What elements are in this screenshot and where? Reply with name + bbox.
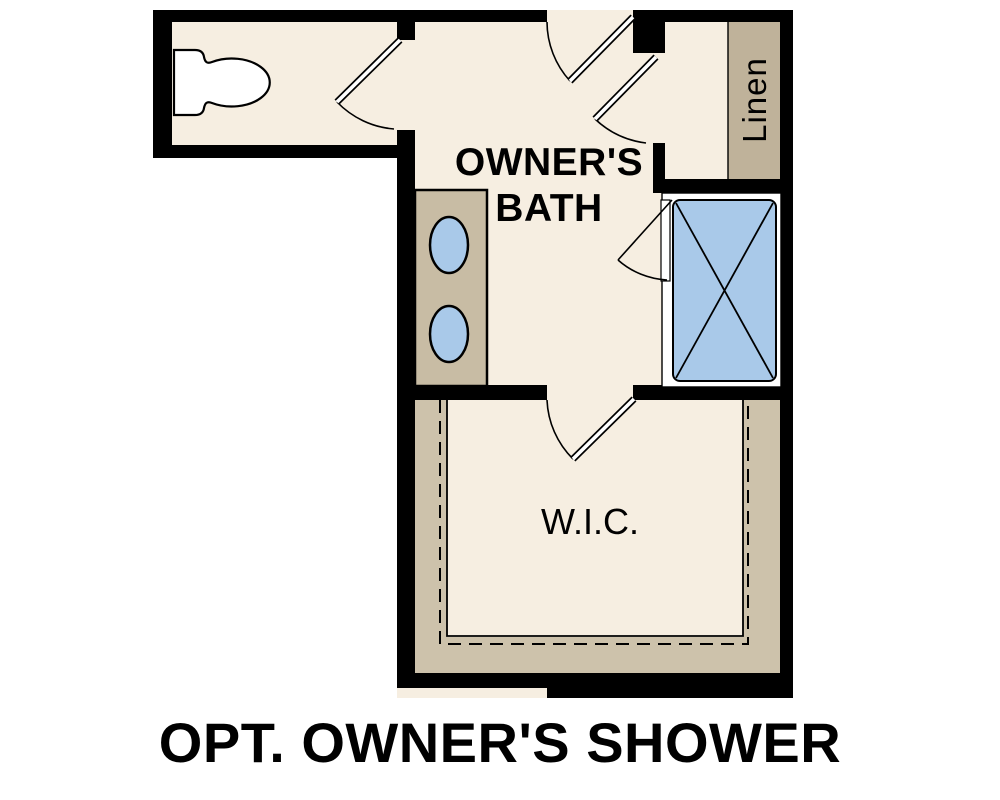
wall bbox=[397, 130, 415, 688]
wall bbox=[653, 179, 793, 193]
wall bbox=[547, 688, 793, 698]
wic-label: W.I.C. bbox=[515, 501, 665, 543]
sink-basin bbox=[430, 306, 468, 362]
wall bbox=[153, 10, 172, 158]
wall bbox=[397, 22, 415, 40]
wic-shelf-bottom bbox=[415, 637, 780, 675]
floor-plan-drawing bbox=[0, 0, 1000, 800]
linen-label: Linen bbox=[738, 40, 772, 160]
wall bbox=[153, 145, 415, 158]
wall bbox=[780, 10, 793, 698]
plan-title: OPT. OWNER'S SHOWER bbox=[0, 710, 1000, 775]
shower-door-opening bbox=[661, 200, 670, 281]
wall bbox=[153, 10, 547, 22]
owners-bath-label-line1: OWNER'S bbox=[449, 140, 649, 186]
wall bbox=[633, 10, 665, 53]
owners-bath-label-line2: BATH bbox=[449, 186, 649, 232]
floor-plan-page: OWNER'S BATH W.I.C. Linen OPT. OWNER'S S… bbox=[0, 0, 1000, 800]
wall bbox=[397, 673, 793, 688]
owners-bath-label: OWNER'S BATH bbox=[449, 140, 649, 232]
wic-shelf-left bbox=[415, 400, 447, 675]
